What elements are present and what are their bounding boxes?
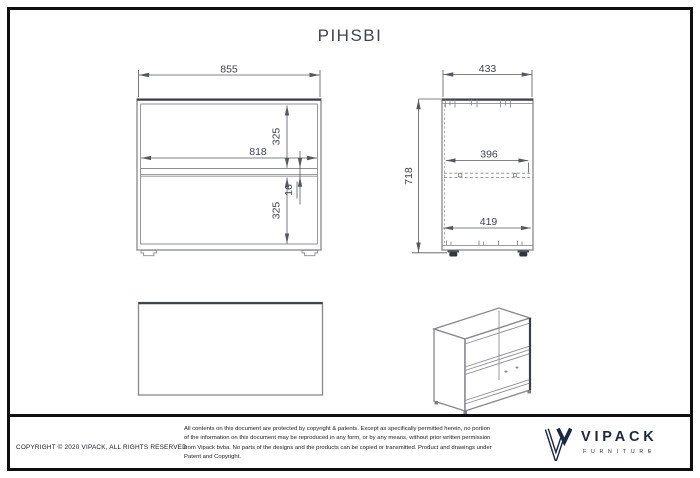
technical-drawing: 855 325 818 16 325 433 — [0, 0, 700, 478]
dim-front-bottom-height: 325 — [271, 202, 283, 220]
iso-foot-back — [435, 401, 439, 405]
dim-side-width: 433 — [479, 63, 497, 75]
front-view: 855 325 818 16 325 — [137, 64, 321, 256]
brand-name: VIPACK — [581, 429, 658, 445]
top-view — [139, 303, 323, 396]
disclaimer-text: All contents on this document are protec… — [184, 425, 492, 462]
right-caster-plate — [518, 250, 530, 252]
dim-front-inner-width: 818 — [249, 146, 267, 158]
iso-foot-front-right — [528, 390, 532, 394]
footer-divider — [7, 414, 693, 418]
copyright-text: COPYRIGHT © 2020 VIPACK, ALL RIGHTS RESE… — [16, 444, 187, 451]
vipack-logo-icon — [544, 427, 572, 461]
left-caster — [449, 252, 457, 256]
dim-front-top-height: 325 — [271, 128, 283, 146]
dim-side-inner-depth: 419 — [480, 216, 498, 228]
vipack-logo: VIPACK FURNITURE — [544, 426, 674, 464]
left-foot — [141, 250, 157, 255]
top-view-outline — [139, 303, 323, 396]
dim-side-height: 718 — [403, 167, 415, 185]
right-caster — [519, 252, 527, 256]
iso-left-face — [434, 329, 465, 411]
document-page: PIHSBI 855 325 818 16 — [0, 0, 700, 478]
dim-front-width: 855 — [220, 64, 238, 76]
isometric-view — [434, 308, 531, 415]
dim-side-shelf-depth: 396 — [480, 148, 498, 160]
left-caster-plate — [448, 250, 460, 252]
right-foot — [302, 250, 318, 255]
brand-tagline: FURNITURE — [583, 449, 656, 455]
dim-front-shelf-thickness: 16 — [283, 184, 295, 196]
side-view: 433 396 419 718 — [403, 63, 533, 257]
